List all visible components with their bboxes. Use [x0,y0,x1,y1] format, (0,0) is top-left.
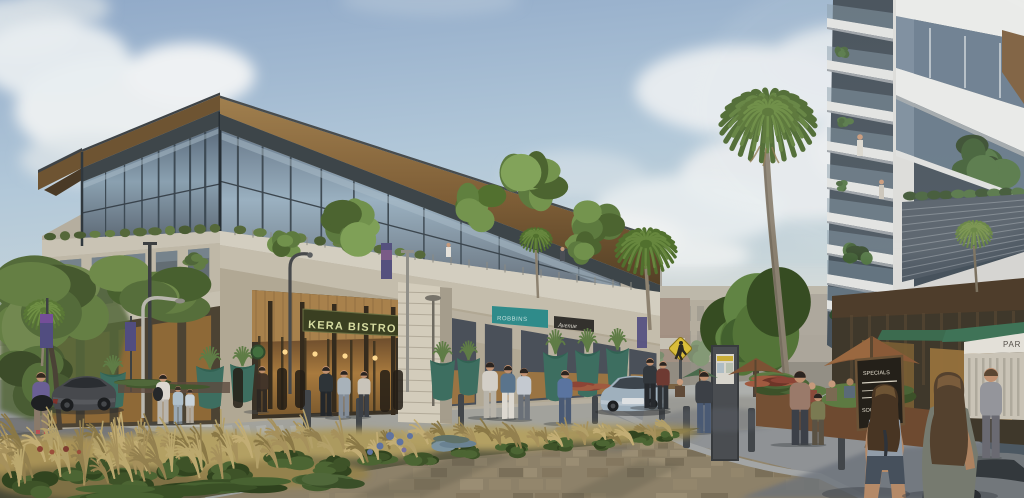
svg-text:PAR: PAR [1003,340,1021,349]
svg-text:Avenue: Avenue [557,322,577,330]
svg-text:SPECIALS: SPECIALS [863,370,890,377]
svg-text:ROBBINS: ROBBINS [497,316,528,323]
